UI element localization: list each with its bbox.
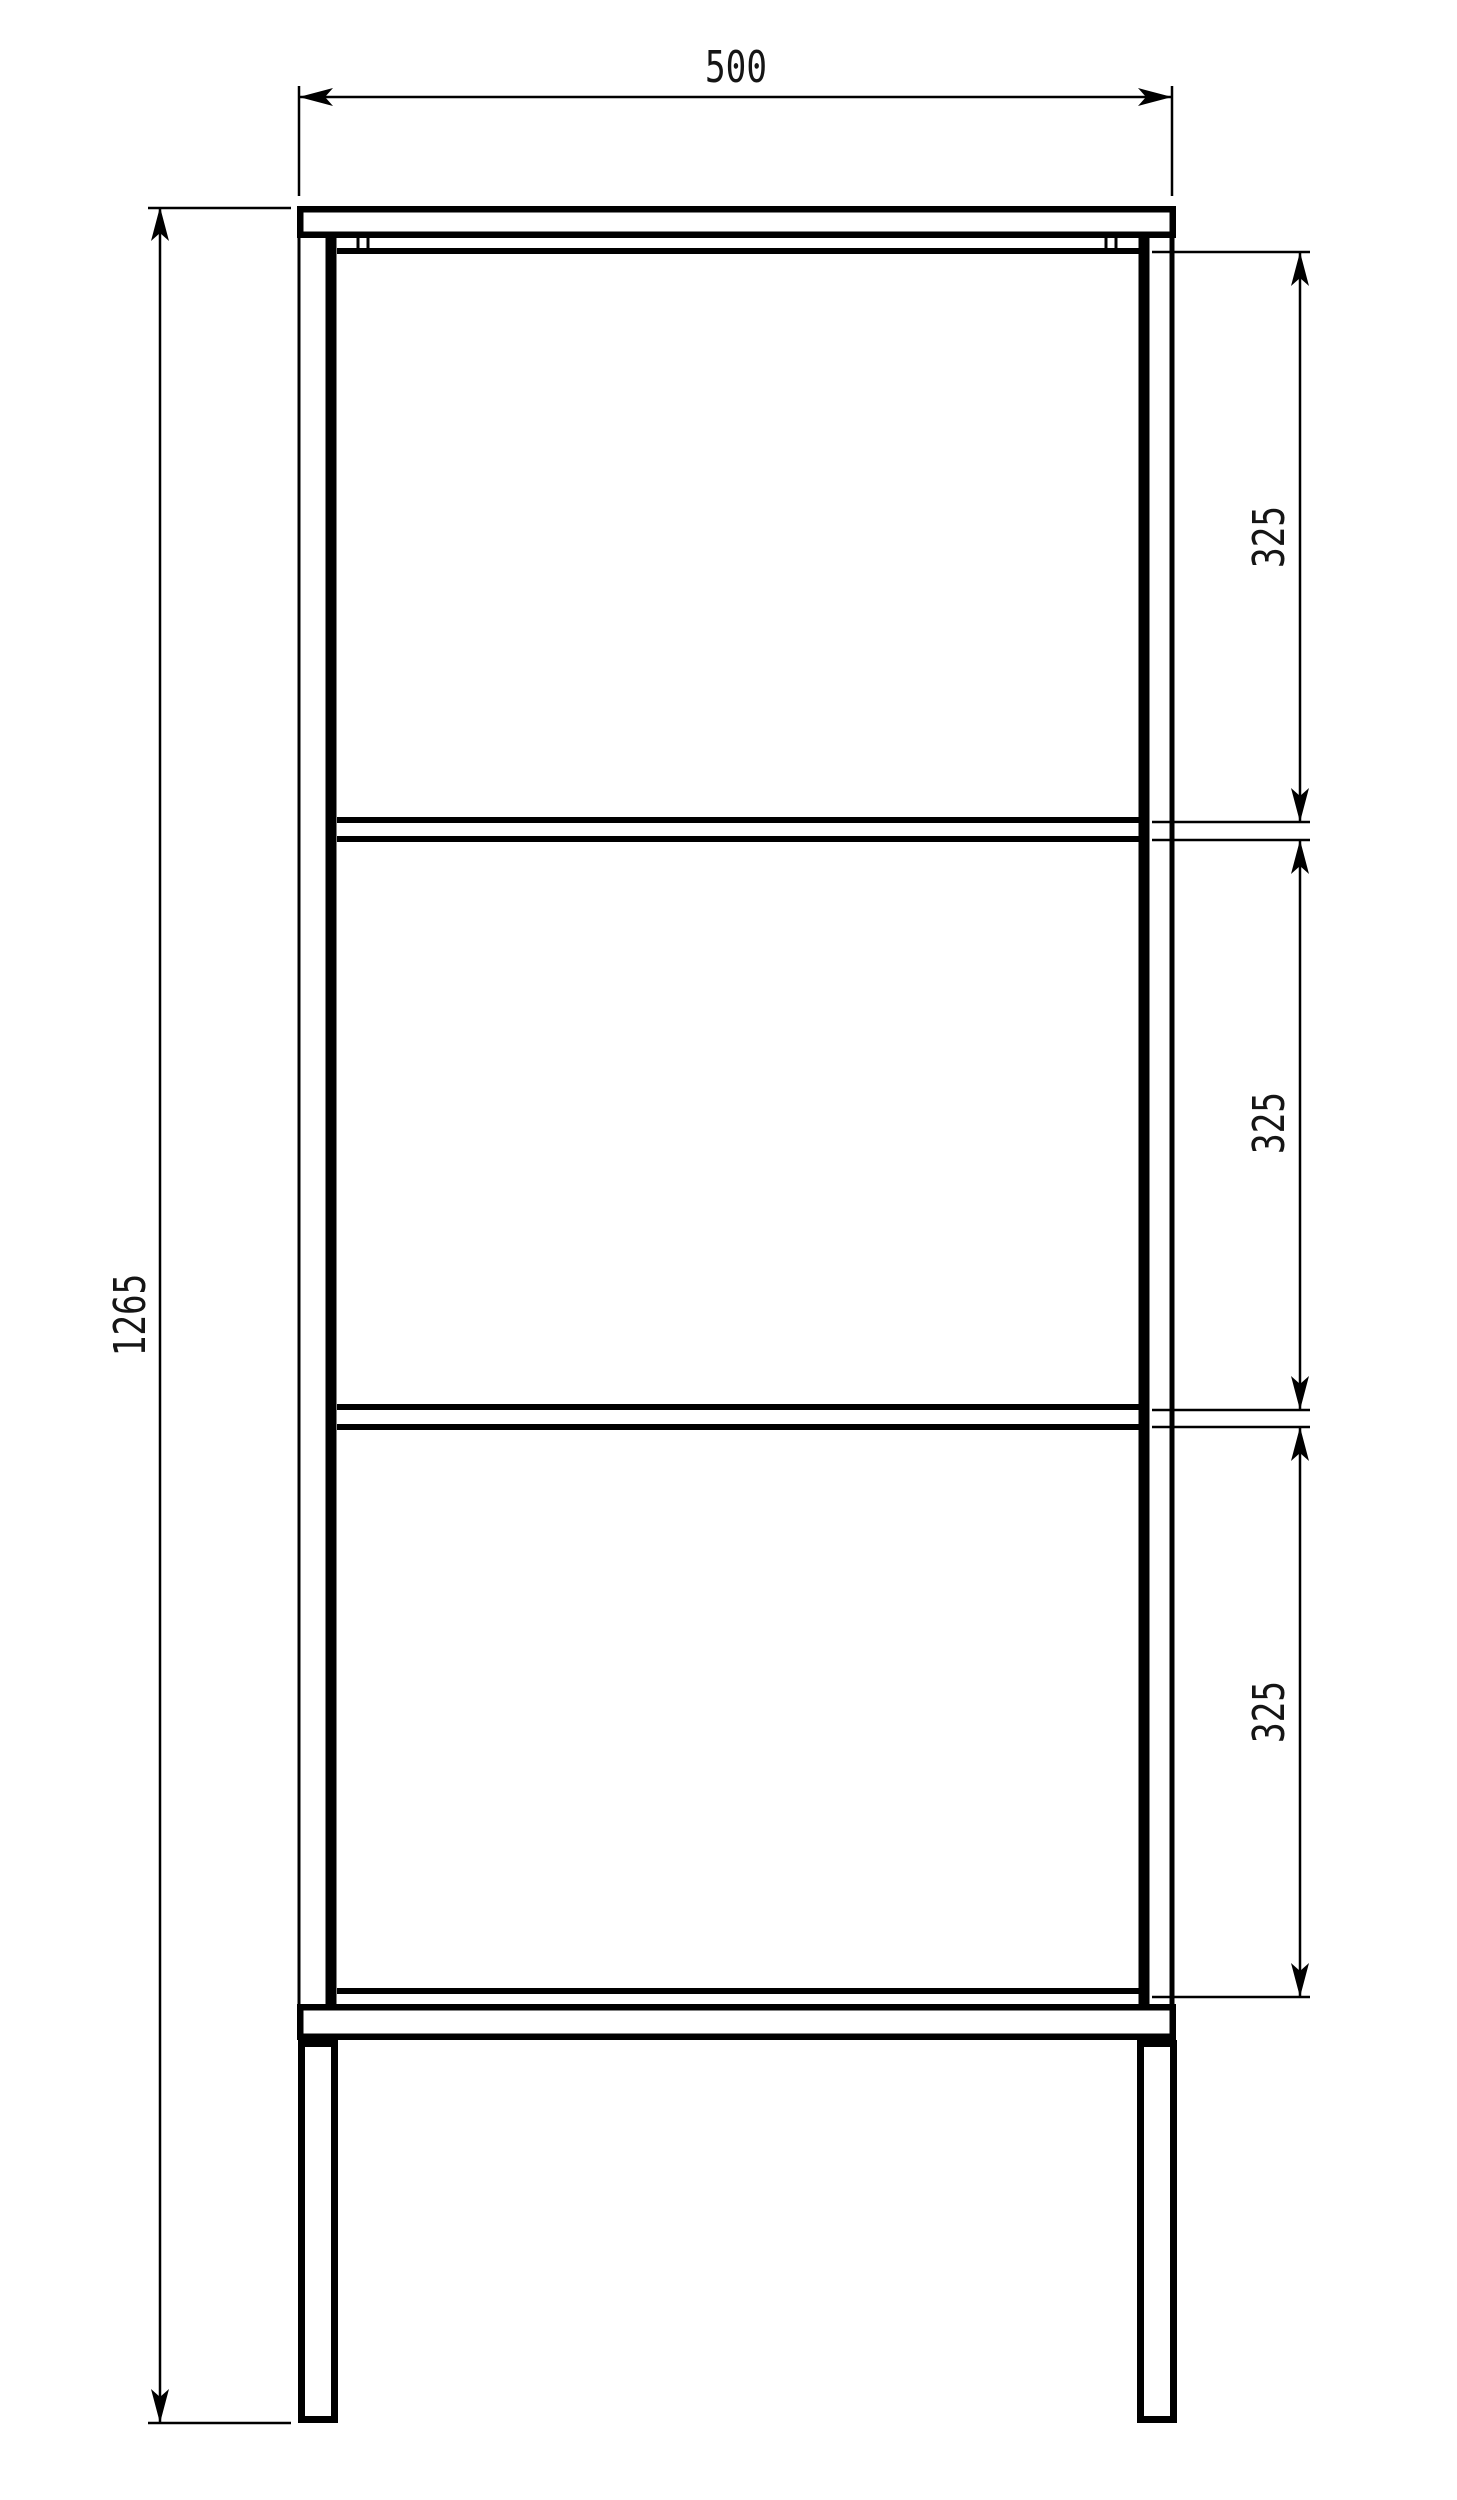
dim-shelf-spacing-2-label: 325: [1248, 1092, 1292, 1154]
dim-shelf-spacing-3-label: 325: [1248, 1681, 1292, 1743]
dim-width-label: 500: [705, 46, 767, 90]
dim-shelf-spacing-1-label: 325: [1248, 506, 1292, 568]
top-panel: [300, 209, 1173, 235]
drawing-sheet: 500 1265 325 325 325: [0, 0, 1457, 2500]
bottom-stretcher: [300, 2007, 1173, 2037]
dim-height-label: 1265: [109, 1274, 153, 1357]
frame-drawing-svg: [0, 0, 1457, 2500]
left-leg: [302, 2044, 335, 2420]
right-leg: [1141, 2044, 1174, 2420]
